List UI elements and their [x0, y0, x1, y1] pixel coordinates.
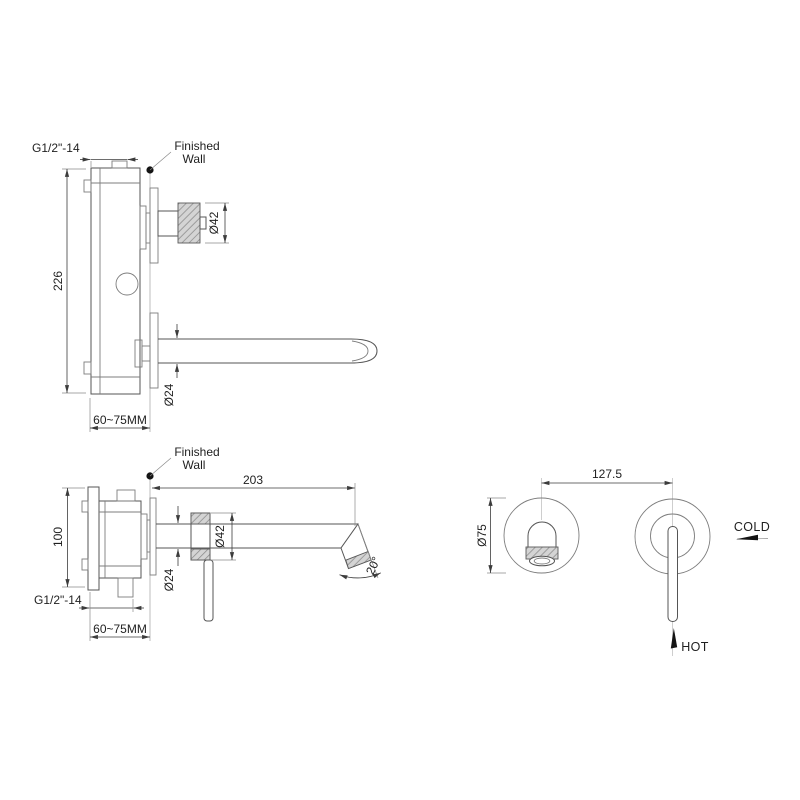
dim-label-100: 100 — [51, 527, 65, 547]
hot-label: HOT — [681, 640, 709, 654]
finished-wall-label-2: Wall — [183, 152, 206, 166]
dim-label-127-5: 127.5 — [592, 467, 622, 481]
finished-wall-label-4: Wall — [183, 458, 206, 472]
thread-label: G1/2"-14 — [32, 141, 80, 155]
sheet-background — [0, 0, 800, 800]
thread-label-2: G1/2"-14 — [34, 593, 82, 607]
dim-label-203: 203 — [243, 473, 263, 487]
dim-label-o42-top: Ø42 — [207, 211, 221, 234]
technical-drawing-sheet: 226 G1/2"-14 Finished Wall Ø42 — [0, 0, 800, 800]
dim-label-226: 226 — [51, 271, 65, 291]
faucet-dimension-drawing: 226 G1/2"-14 Finished Wall Ø42 — [0, 0, 800, 800]
dim-label-wall-range-top: 60~75MM — [93, 413, 147, 427]
lever-handle-front — [668, 527, 678, 622]
knurled-knob — [178, 203, 200, 243]
cold-label: COLD — [734, 520, 770, 534]
lever-handle-side — [204, 560, 213, 621]
dim-label-o75: Ø75 — [475, 524, 489, 547]
dim-label-wall-range-bottom: 60~75MM — [93, 622, 147, 636]
finished-wall-label-1: Finished — [174, 139, 219, 153]
finished-wall-label-3: Finished — [174, 445, 219, 459]
dim-label-o24-bottom: Ø24 — [162, 568, 176, 591]
dim-label-o42-bottom: Ø42 — [213, 525, 227, 548]
dim-label-o24-top: Ø24 — [162, 383, 176, 406]
